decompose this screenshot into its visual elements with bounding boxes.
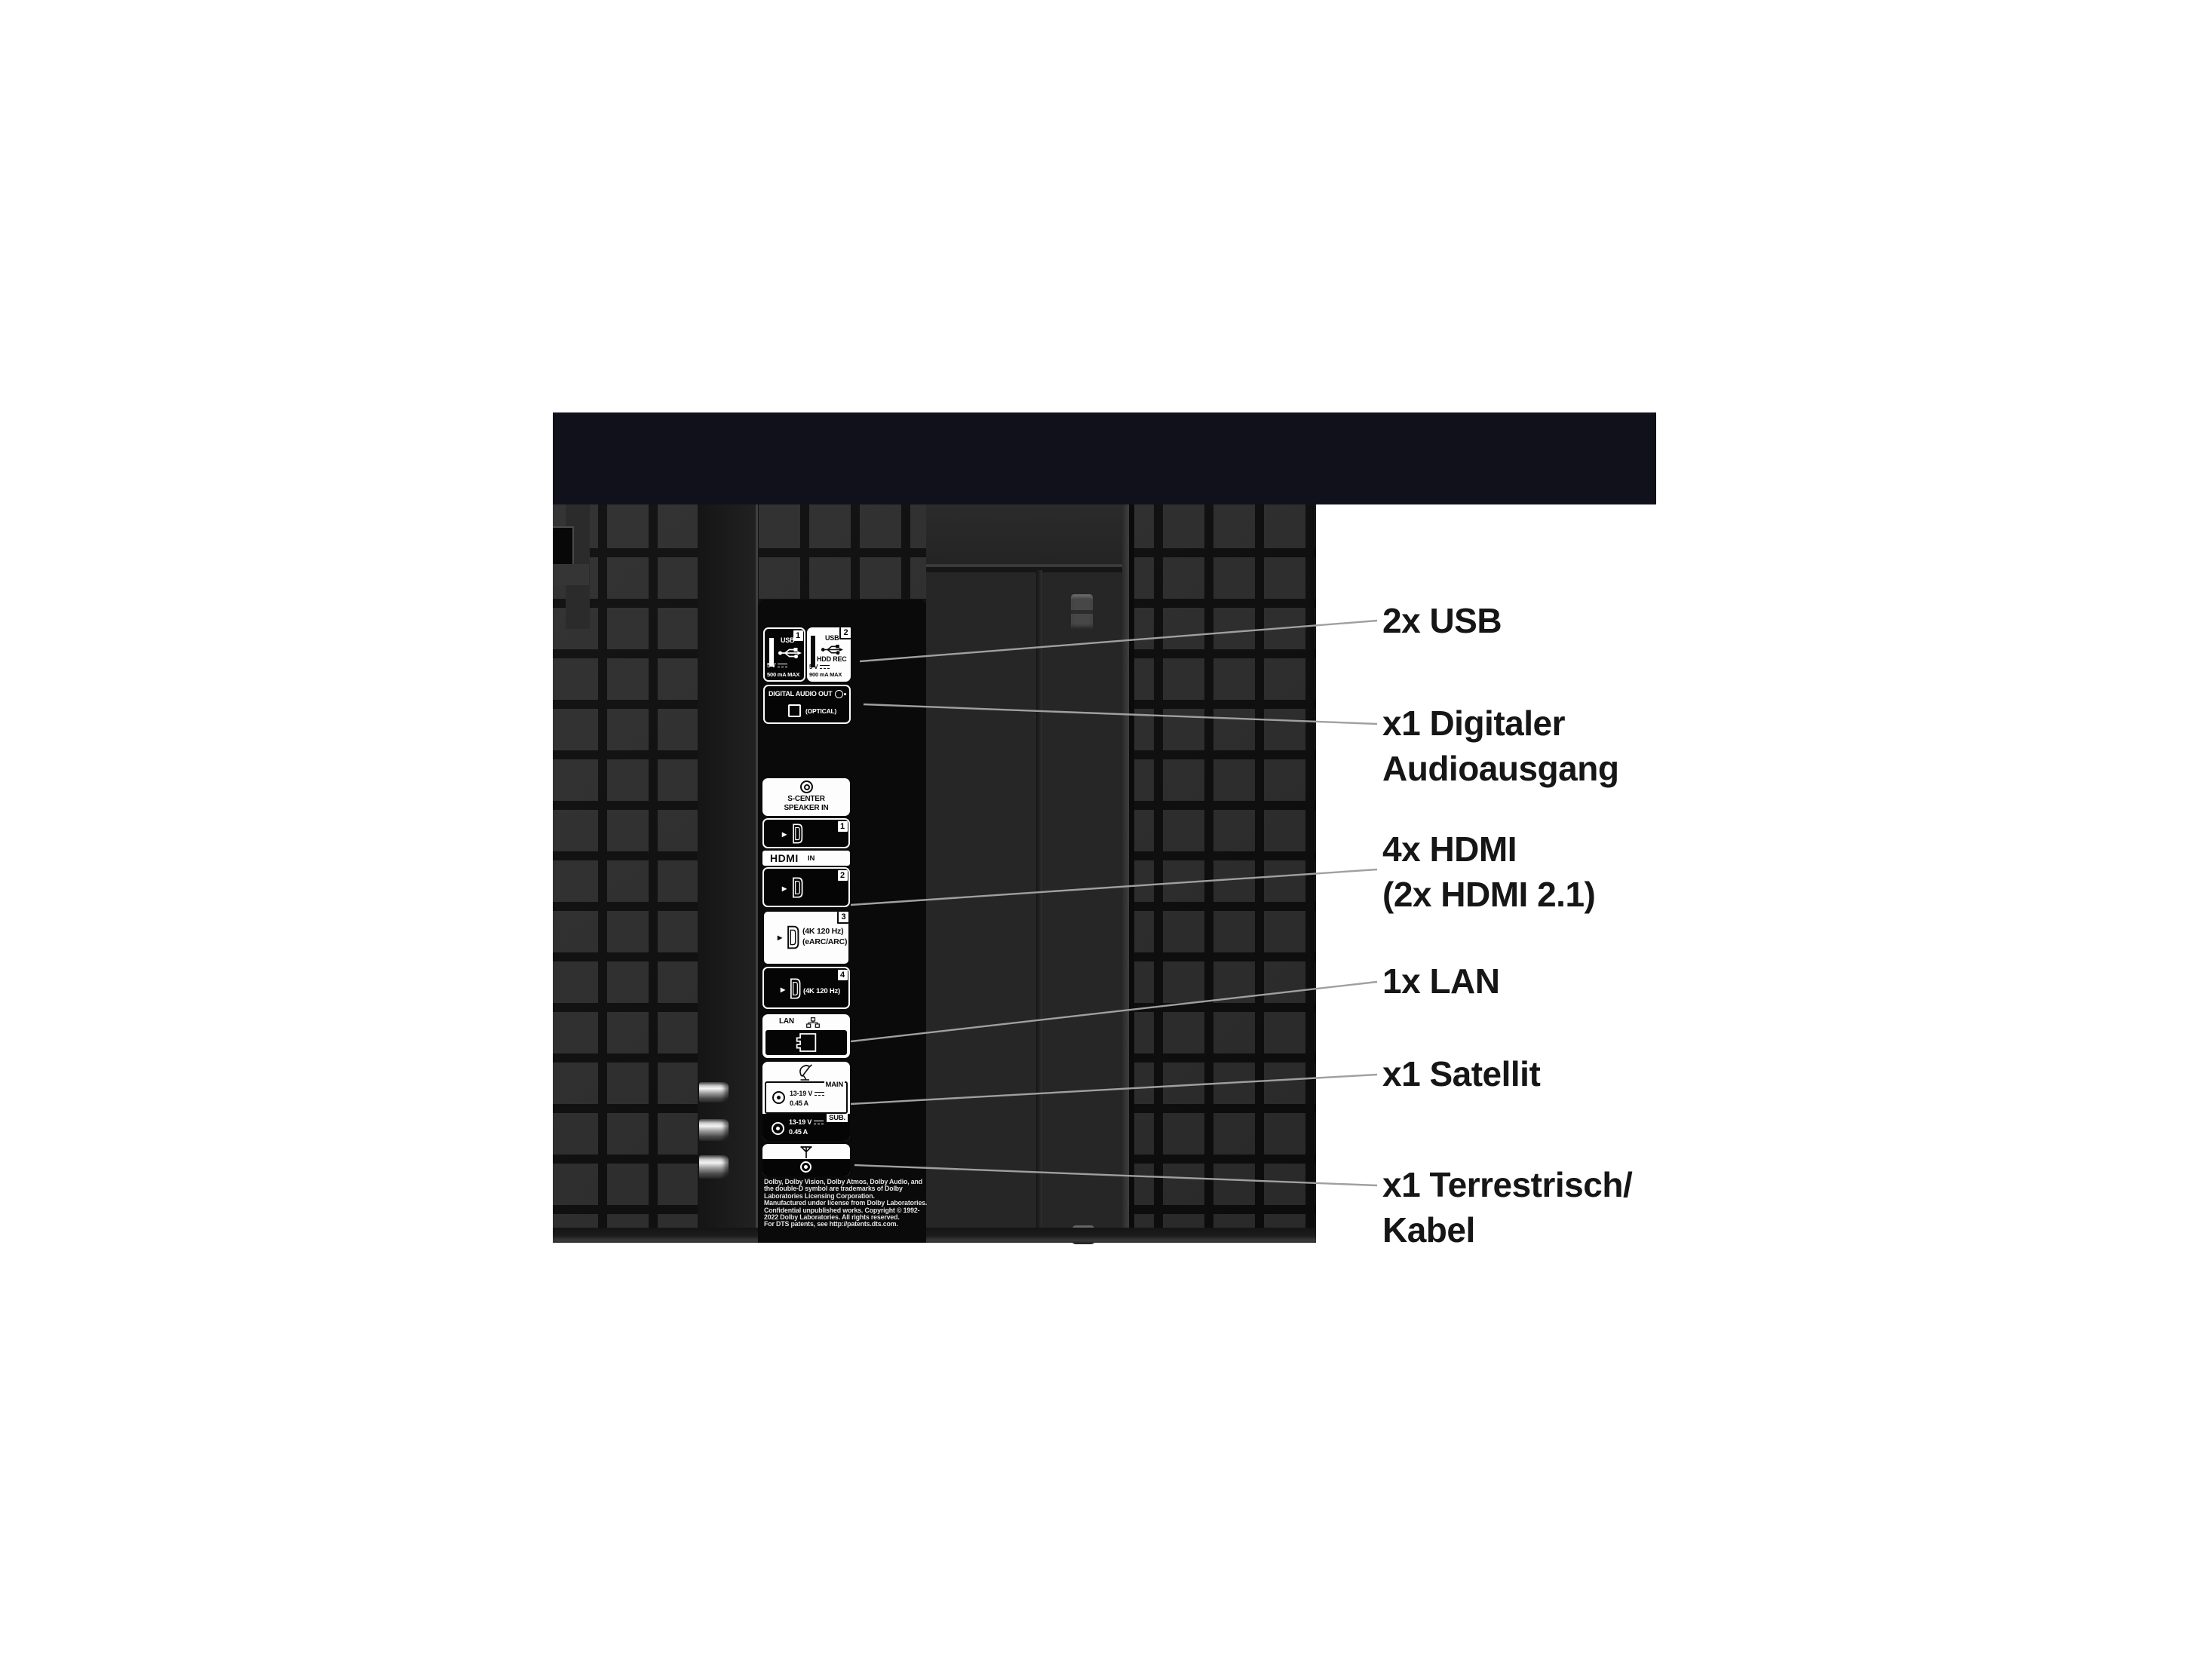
- port-terrestrial-cable: [762, 1144, 850, 1176]
- usb2-label: USB: [825, 634, 839, 642]
- panel-right-shadow: [1310, 504, 1316, 1228]
- lan-label: LAN: [779, 1017, 794, 1026]
- arrow-icon: ▸: [778, 933, 782, 942]
- network-icon: [806, 1017, 820, 1028]
- antenna-plug-terrestrial: [699, 1155, 729, 1179]
- port-s-center-speaker-in: S-CENTER SPEAKER IN: [762, 778, 850, 816]
- arrow-icon: ▸: [782, 884, 787, 893]
- usb1-voltage: 5 V: [767, 662, 787, 669]
- connection-bay: 1 USB 5 V 500 mA MAX 2 USB HDD REC: [758, 600, 926, 1243]
- satellite-main-tab: MAIN: [824, 1081, 845, 1089]
- hdmi-connector-icon: [787, 925, 799, 950]
- left-mount-ledge: [553, 564, 589, 585]
- hdmi3-spec-4k: (4K 120 Hz): [802, 927, 843, 936]
- port-hdmi-3-earc: 3 ▸ (4K 120 Hz) (eARC/ARC): [762, 910, 850, 965]
- satellite-sub-tab: SUB.: [827, 1114, 848, 1122]
- center-column-gap: [1129, 504, 1134, 1243]
- port-hdmi-2: 2 ▸: [762, 867, 850, 907]
- usb-trident-icon: [778, 647, 802, 659]
- usb2-number-tab: 2: [839, 627, 851, 639]
- satellite-main-port: MAIN 13-19 V 0.45 A: [765, 1081, 848, 1114]
- dc-symbol: [815, 1091, 824, 1097]
- hdmi-in-band: HDMI IN: [762, 851, 850, 866]
- s-center-line2: SPEAKER IN: [762, 804, 850, 812]
- left-mount-slot: [553, 526, 574, 566]
- port-digital-audio-out: DIGITAL AUDIO OUT (OPTICAL): [763, 685, 851, 724]
- speaker-jack-icon: [800, 780, 813, 793]
- f-connector-icon: [772, 1122, 784, 1135]
- annotation-lan-line1: 1x LAN: [1382, 958, 1499, 1004]
- annotation-hdmi-line2: (2x HDMI 2.1): [1382, 872, 1595, 917]
- satellite-sub-current: 0.45 A: [789, 1128, 808, 1136]
- dc-symbol: [814, 1120, 824, 1126]
- satellite-dish-icon: [798, 1064, 815, 1081]
- usb1-label: USB: [781, 636, 794, 644]
- annotation-digital-audio: x1 Digitaler Audioausgang: [1382, 701, 1618, 791]
- usb-trident-icon: [821, 644, 843, 655]
- port-usb-2-hdd-rec: 2 USB HDD REC 5 V 900 mA MAX: [807, 627, 851, 682]
- annotation-terrestrial: x1 Terrestrisch/ Kabel: [1382, 1162, 1632, 1253]
- f-connector-icon: [800, 1161, 811, 1173]
- hdmi3-number-tab: 3: [837, 912, 848, 924]
- hdmi3-spec-earc: (eARC/ARC): [802, 937, 847, 946]
- antenna-icon: [799, 1145, 813, 1159]
- port-hdmi-4: 4 ▸ (4K 120 Hz): [762, 967, 850, 1009]
- center-column-top: [926, 504, 1129, 564]
- hdmi4-spec-4k: (4K 120 Hz): [803, 987, 840, 995]
- annotation-digital-audio-line1: x1 Digitaler: [1382, 701, 1618, 746]
- satellite-main-current: 0.45 A: [790, 1099, 808, 1107]
- port-hdmi-1: 1 ▸: [762, 818, 850, 848]
- annotation-terrestrial-line2: Kabel: [1382, 1207, 1632, 1253]
- port-usb-1: 1 USB 5 V 500 mA MAX: [763, 627, 805, 682]
- tv-top-edge: [553, 412, 1656, 504]
- optical-port-icon: [788, 704, 801, 717]
- arrow-icon: ▸: [782, 830, 787, 839]
- hdmi1-number-tab: 1: [838, 821, 848, 832]
- usb-slot-icon: [811, 636, 815, 667]
- antenna-plug-main: [699, 1082, 729, 1102]
- s-center-line1: S-CENTER: [762, 795, 850, 803]
- annotation-hdmi-line1: 4x HDMI: [1382, 826, 1595, 872]
- usb1-current: 500 mA MAX: [767, 671, 799, 678]
- annotation-digital-audio-line2: Audioausgang: [1382, 746, 1618, 791]
- center-column: [926, 504, 1129, 1243]
- panel-bottom-frame: [553, 1228, 1316, 1243]
- satellite-sub-port: SUB. 13-19 V 0.45 A: [762, 1114, 850, 1141]
- fine-print-line: For DTS patents, see http://patents.dts.…: [764, 1221, 924, 1228]
- lan-port-window: [765, 1030, 847, 1055]
- hdmi4-number-tab: 4: [838, 970, 848, 980]
- usb1-number-tab: 1: [793, 630, 803, 641]
- annotation-satellite: x1 Satellit: [1382, 1051, 1540, 1096]
- center-column-highlight: [1122, 504, 1129, 1243]
- hdmi-logo: HDMI: [770, 852, 799, 864]
- hdmi-connector-icon: [792, 823, 803, 844]
- digital-audio-out-title: DIGITAL AUDIO OUT: [769, 690, 843, 698]
- hdmi-connector-icon: [792, 876, 803, 899]
- port-satellite: MAIN 13-19 V 0.45 A SUB. 13-19 V 0.45 A: [762, 1062, 850, 1141]
- legal-fine-print: Dolby, Dolby Vision, Dolby Atmos, Dolby …: [764, 1179, 924, 1228]
- center-column-ledge-shadow: [926, 567, 1129, 572]
- dc-symbol: [820, 664, 830, 670]
- usb2-current: 900 mA MAX: [809, 671, 842, 678]
- usb2-mode: HDD REC: [817, 655, 847, 663]
- annotation-usb: 2x USB: [1382, 598, 1502, 643]
- annotation-terrestrial-line1: x1 Terrestrisch/: [1382, 1162, 1632, 1207]
- usb2-voltage: 5 V: [809, 664, 830, 670]
- optical-label: (OPTICAL): [805, 707, 836, 715]
- annotation-hdmi: 4x HDMI (2x HDMI 2.1): [1382, 826, 1595, 917]
- annotation-usb-line1: 2x USB: [1382, 598, 1502, 643]
- rj45-icon: [795, 1032, 818, 1053]
- port-lan: LAN: [762, 1014, 850, 1058]
- arrow-icon: ▸: [781, 985, 785, 994]
- cable-clip-top: [1070, 593, 1094, 630]
- hdmi-connector-icon: [790, 977, 801, 1000]
- center-column-seam: [1036, 570, 1042, 1243]
- hdmi2-number-tab: 2: [838, 870, 848, 881]
- hdmi-in-label: IN: [808, 854, 815, 863]
- terrestrial-port-window: [762, 1159, 850, 1176]
- audio-out-icon: [835, 690, 843, 698]
- dc-symbol: [778, 663, 787, 669]
- f-connector-icon: [772, 1091, 785, 1104]
- satellite-main-voltage: 13-19 V: [790, 1090, 824, 1097]
- antenna-plug-sub: [699, 1119, 729, 1141]
- satellite-sub-voltage: 13-19 V: [789, 1118, 824, 1126]
- annotation-satellite-line1: x1 Satellit: [1382, 1051, 1540, 1096]
- annotation-lan: 1x LAN: [1382, 958, 1499, 1004]
